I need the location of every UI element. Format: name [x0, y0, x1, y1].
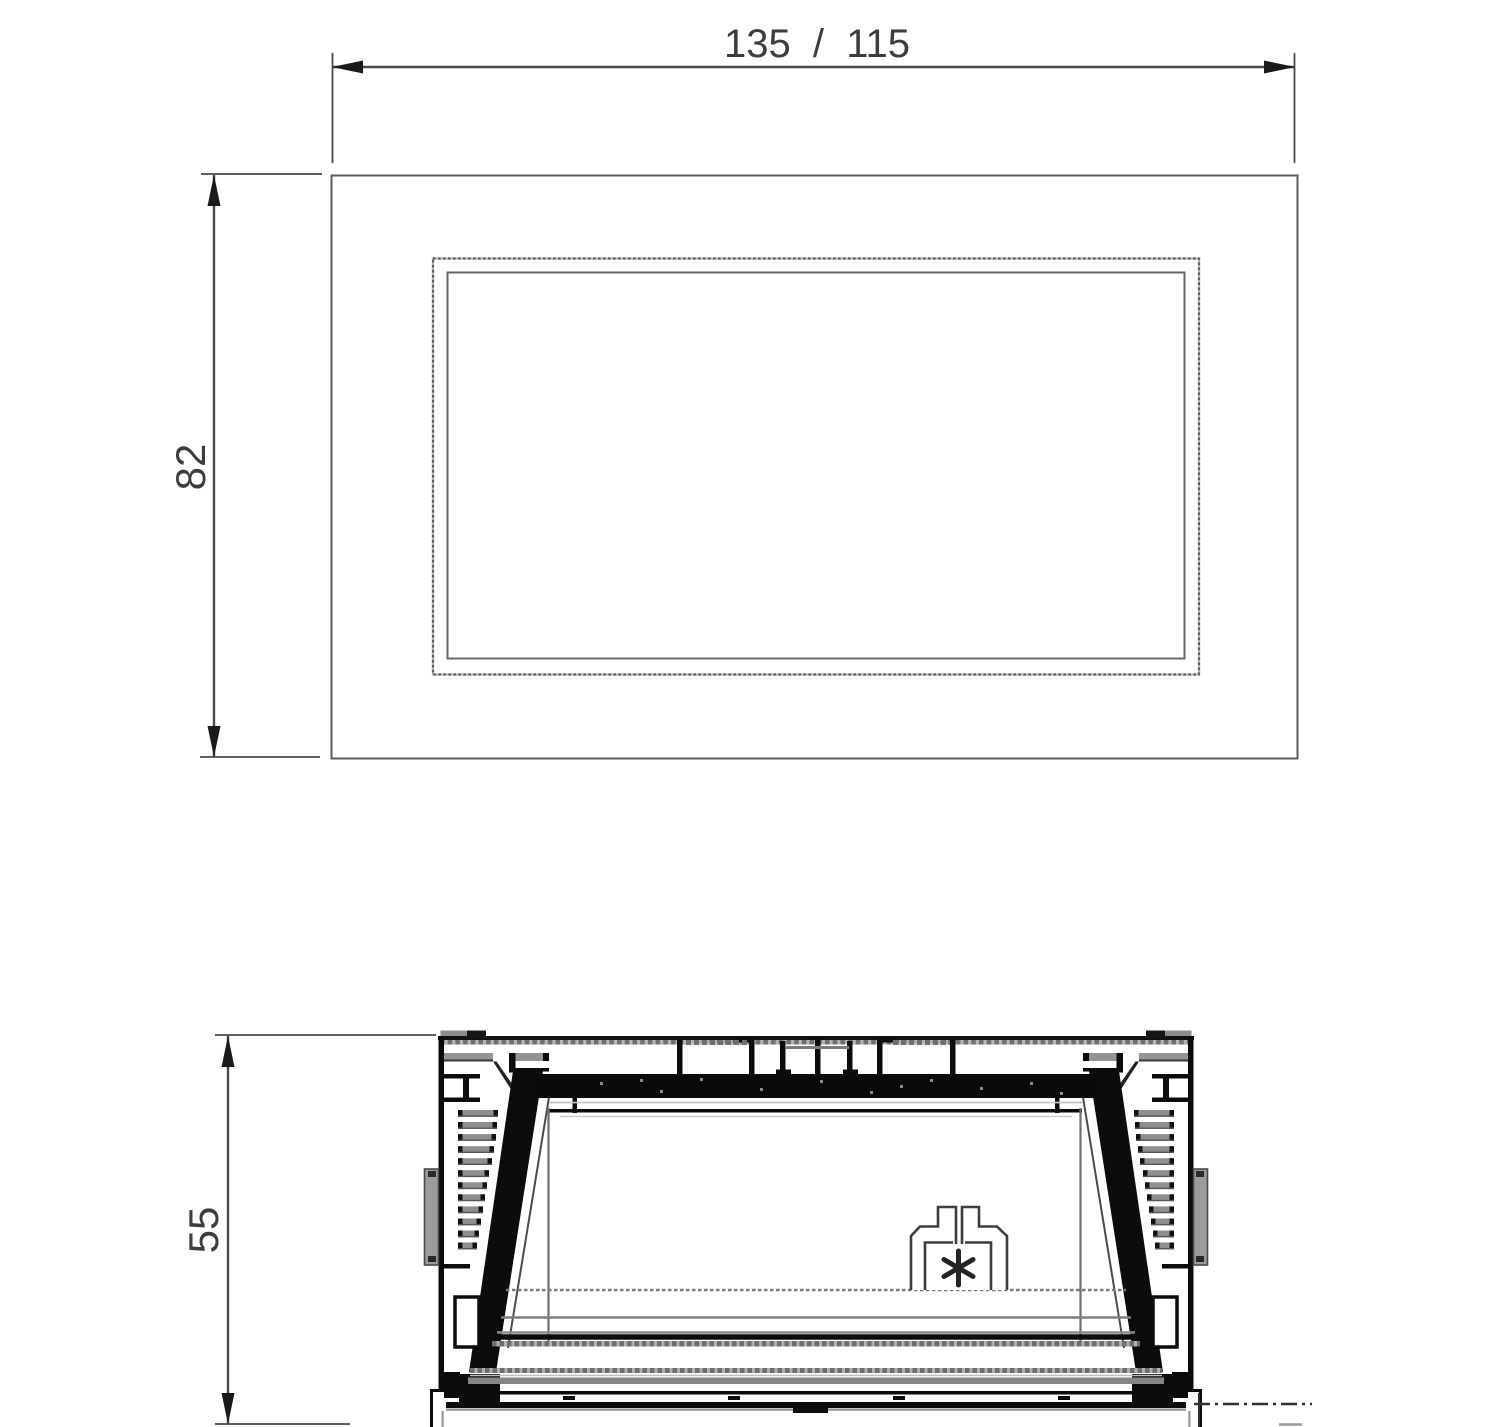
svg-text:135 / 115: 135 / 115 — [724, 22, 910, 66]
svg-text:55: 55 — [180, 1207, 227, 1254]
svg-text:82: 82 — [167, 444, 214, 491]
